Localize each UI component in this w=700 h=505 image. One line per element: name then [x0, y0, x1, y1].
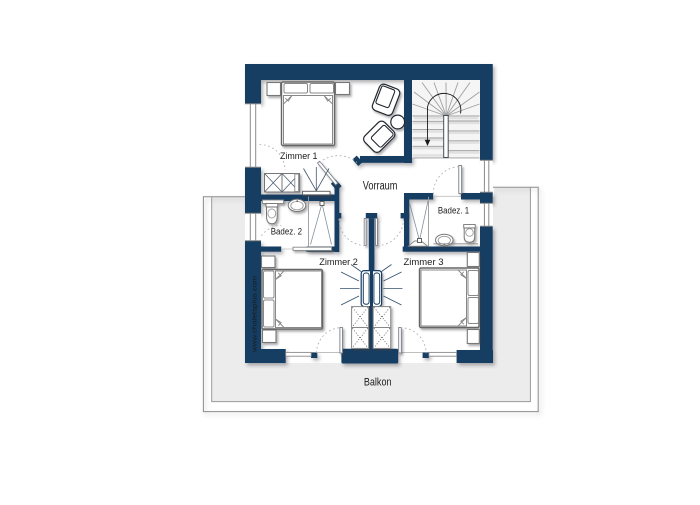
- svg-text:Zimmer 3: Zimmer 3: [404, 257, 444, 268]
- svg-text:Zimmer 2: Zimmer 2: [319, 257, 358, 268]
- svg-text:Badez. 2: Badez. 2: [271, 226, 302, 237]
- svg-text:Badez. 1: Badez. 1: [438, 205, 469, 216]
- svg-text:Vorraum: Vorraum: [363, 181, 398, 193]
- svg-text:www.chaletsplus.com: www.chaletsplus.com: [251, 275, 258, 353]
- svg-text:Zimmer 1: Zimmer 1: [280, 151, 318, 162]
- svg-text:Balkon: Balkon: [364, 376, 392, 388]
